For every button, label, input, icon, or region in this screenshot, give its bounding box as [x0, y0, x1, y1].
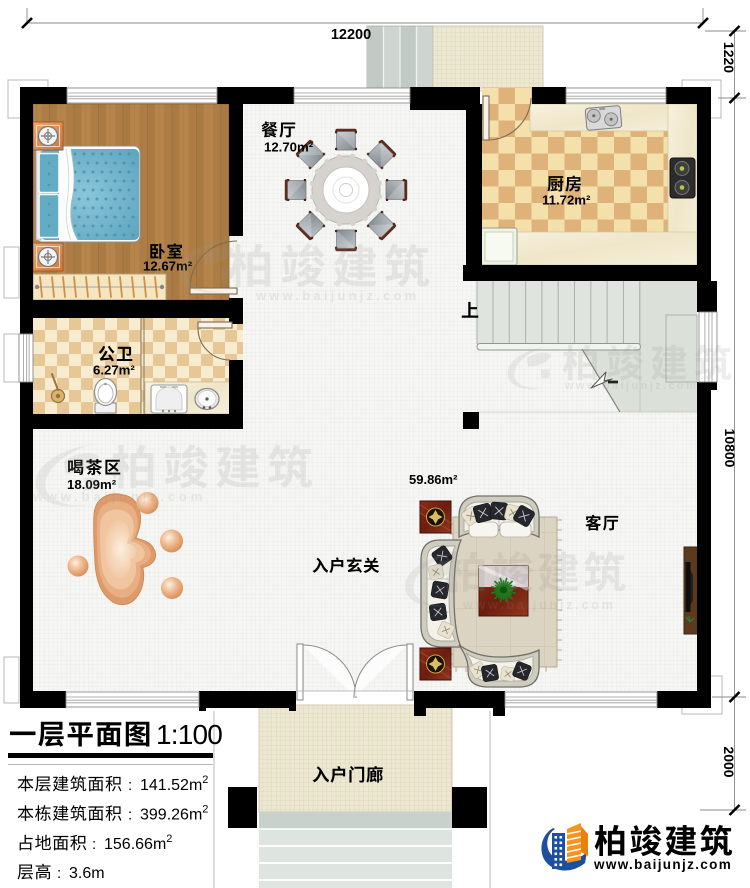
svg-text:www.baijunjz.com: www.baijunjz.com	[593, 857, 732, 872]
svg-text::: :	[128, 807, 132, 824]
svg-text:156.66m2: 156.66m2	[104, 833, 172, 853]
svg-text:1220: 1220	[721, 42, 737, 73]
svg-text:12.70m²: 12.70m²	[264, 140, 314, 155]
svg-text:www.baijunjz.com: www.baijunjz.com	[564, 380, 698, 392]
svg-text:3.6m: 3.6m	[69, 865, 105, 882]
svg-text::: :	[128, 777, 132, 794]
svg-text:2000: 2000	[721, 746, 737, 777]
svg-text:www.baijunjz.com: www.baijunjz.com	[462, 598, 616, 612]
svg-text:11.72m²: 11.72m²	[542, 193, 591, 208]
svg-text::: :	[92, 836, 96, 853]
svg-text:141.52m2: 141.52m2	[140, 774, 208, 794]
svg-text:www.baijunjz.com: www.baijunjz.com	[255, 288, 419, 303]
svg-text:6.27m²: 6.27m²	[93, 363, 135, 378]
svg-text:399.26m2: 399.26m2	[140, 804, 208, 824]
svg-text:www.baijunjz.com: www.baijunjz.com	[32, 489, 206, 504]
svg-text:12200: 12200	[331, 27, 371, 43]
svg-text:1:100: 1:100	[156, 719, 222, 750]
svg-text::: :	[57, 865, 61, 882]
svg-text:59.86m²: 59.86m²	[409, 472, 458, 487]
svg-text:10800: 10800	[722, 429, 738, 468]
